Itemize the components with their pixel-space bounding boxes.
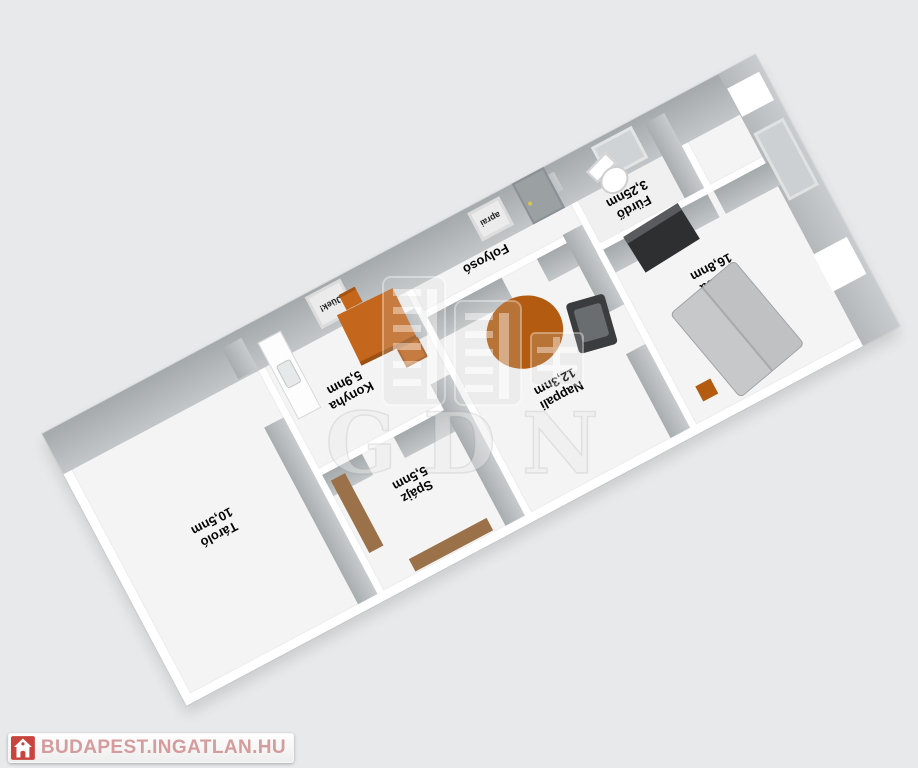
wall-picture-text-2: aprai (479, 209, 503, 228)
floorplan-3d: Jüek! aprai (42, 54, 900, 705)
door-handle (527, 201, 532, 206)
kitchen-sink (276, 359, 302, 389)
house-icon (11, 736, 35, 760)
floorplan-image: Jüek! aprai (0, 0, 918, 768)
armchair-cushion (573, 303, 609, 343)
site-logo-text: BUDAPEST.INGATLAN.HU (41, 737, 286, 759)
site-logo-bar[interactable]: BUDAPEST.INGATLAN.HU (8, 733, 294, 763)
